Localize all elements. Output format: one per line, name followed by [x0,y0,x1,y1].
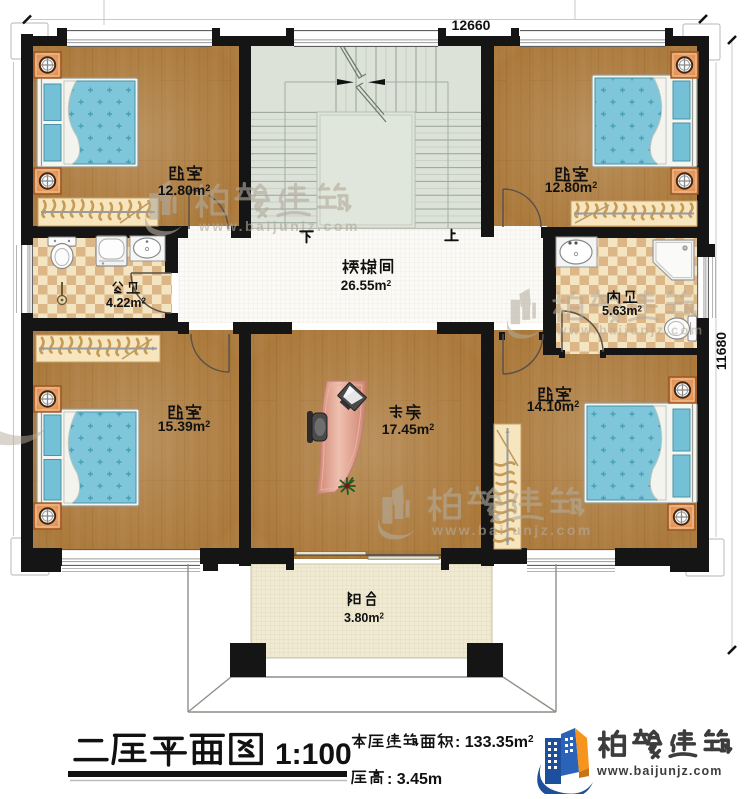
svg-text:12.80m2: 12.80m2 [158,182,211,198]
svg-text:www.baijunjz.com: www.baijunjz.com [596,764,722,778]
svg-text:11680: 11680 [713,332,729,370]
svg-text:4.22m2: 4.22m2 [106,296,146,310]
svg-text:www.baijunjz.com: www.baijunjz.com [431,522,593,538]
svg-text:1:100: 1:100 [275,738,352,771]
svg-text:www.baijunjz.com: www.baijunjz.com [556,323,705,338]
svg-text:www.baijunjz.com: www.baijunjz.com [198,218,360,234]
svg-text:17.45m2: 17.45m2 [382,421,435,437]
svg-text:: 133.35m2: : 133.35m2 [455,734,534,751]
svg-text:5.63m2: 5.63m2 [602,304,642,318]
svg-text:15.39m2: 15.39m2 [158,418,211,434]
svg-text:: 3.45m: : 3.45m [387,771,442,788]
svg-text:3.80m2: 3.80m2 [344,611,384,625]
svg-text:14.10m2: 14.10m2 [527,398,580,414]
svg-text:26.55m2: 26.55m2 [341,278,392,293]
svg-text:12660: 12660 [452,17,491,33]
svg-text:12.80m2: 12.80m2 [545,179,598,195]
